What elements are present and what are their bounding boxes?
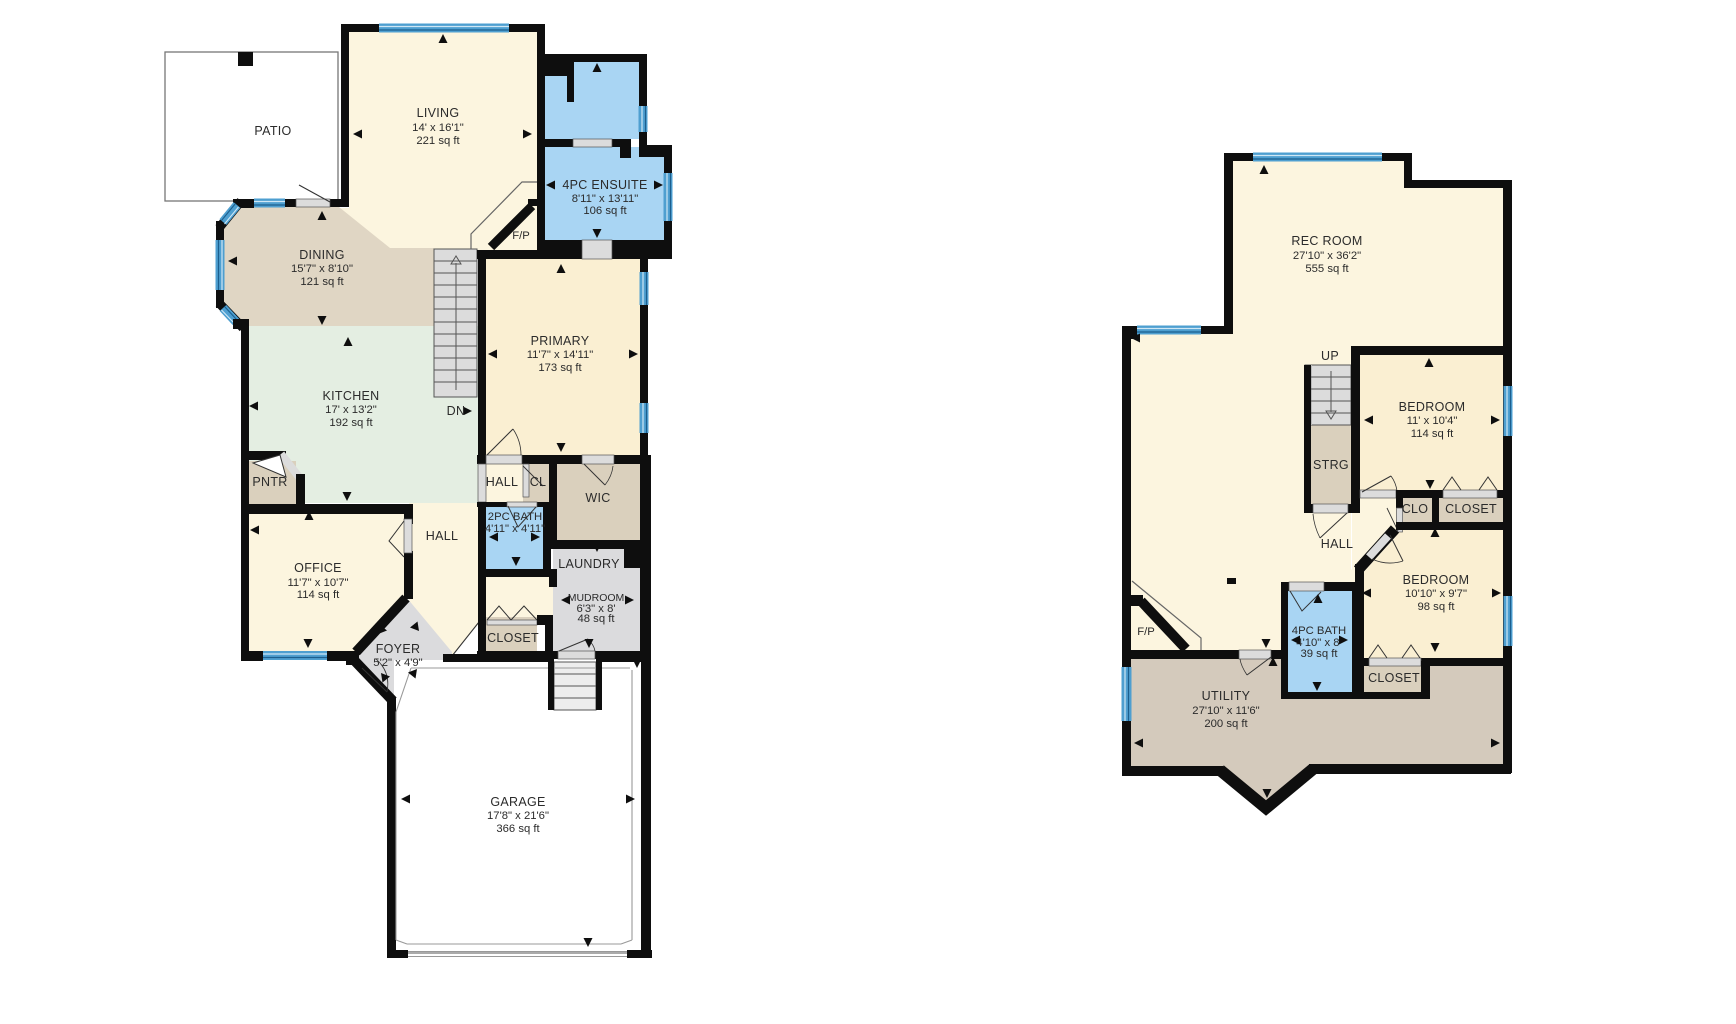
svg-text:LAUNDRY: LAUNDRY xyxy=(558,557,620,571)
svg-text:5'2" x 4'9": 5'2" x 4'9" xyxy=(373,657,422,669)
svg-text:15'7" x 8'10": 15'7" x 8'10" xyxy=(291,263,353,275)
svg-text:LIVING: LIVING xyxy=(417,106,460,120)
svg-text:4'11" x 4'11": 4'11" x 4'11" xyxy=(485,523,545,535)
svg-text:39 sq ft: 39 sq ft xyxy=(1300,648,1338,660)
svg-text:OFFICE: OFFICE xyxy=(294,561,342,575)
svg-text:4PC ENSUITE: 4PC ENSUITE xyxy=(562,178,647,192)
svg-text:CLO: CLO xyxy=(1402,502,1429,516)
svg-text:KITCHEN: KITCHEN xyxy=(323,389,380,403)
svg-text:106 sq ft: 106 sq ft xyxy=(583,205,627,217)
svg-text:CL: CL xyxy=(530,475,547,489)
svg-text:114 sq ft: 114 sq ft xyxy=(1411,428,1454,440)
svg-text:200 sq ft: 200 sq ft xyxy=(1204,718,1248,730)
svg-text:48 sq ft: 48 sq ft xyxy=(577,613,615,625)
svg-text:PRIMARY: PRIMARY xyxy=(531,334,590,348)
svg-text:CLOSET: CLOSET xyxy=(1445,502,1497,516)
svg-text:17' x 13'2": 17' x 13'2" xyxy=(325,404,377,416)
svg-text:CLOSET: CLOSET xyxy=(487,631,539,645)
svg-text:4PC BATH: 4PC BATH xyxy=(1292,625,1346,637)
svg-text:F/P: F/P xyxy=(1137,626,1155,638)
svg-text:11'7" x 14'11": 11'7" x 14'11" xyxy=(527,349,594,361)
svg-text:14' x 16'1": 14' x 16'1" xyxy=(412,122,464,134)
svg-text:STRG: STRG xyxy=(1313,458,1349,472)
svg-text:221 sq ft: 221 sq ft xyxy=(416,135,460,147)
svg-text:11'7" x 10'7": 11'7" x 10'7" xyxy=(287,577,348,589)
svg-text:BEDROOM: BEDROOM xyxy=(1403,573,1470,587)
svg-text:27'10" x 36'2": 27'10" x 36'2" xyxy=(1293,250,1361,262)
svg-text:PNTR: PNTR xyxy=(252,475,287,489)
svg-text:98 sq ft: 98 sq ft xyxy=(1417,601,1455,613)
svg-text:UTILITY: UTILITY xyxy=(1202,689,1251,703)
svg-text:BEDROOM: BEDROOM xyxy=(1399,400,1466,414)
svg-text:PATIO: PATIO xyxy=(254,124,291,138)
svg-text:HALL: HALL xyxy=(1321,537,1353,551)
svg-text:10'10" x 9'7": 10'10" x 9'7" xyxy=(1405,588,1467,600)
svg-text:555 sq ft: 555 sq ft xyxy=(1305,263,1349,275)
svg-text:173 sq ft: 173 sq ft xyxy=(538,362,582,374)
svg-text:CLOSET: CLOSET xyxy=(1368,671,1420,685)
svg-text:121 sq ft: 121 sq ft xyxy=(300,276,344,288)
svg-text:FOYER: FOYER xyxy=(376,642,421,656)
svg-text:11' x 10'4": 11' x 10'4" xyxy=(1407,415,1458,427)
svg-text:GARAGE: GARAGE xyxy=(490,795,545,809)
svg-text:192 sq ft: 192 sq ft xyxy=(329,417,373,429)
svg-text:17'8" x 21'6": 17'8" x 21'6" xyxy=(487,810,549,822)
svg-text:366 sq ft: 366 sq ft xyxy=(496,823,540,835)
svg-text:REC ROOM: REC ROOM xyxy=(1291,234,1362,248)
svg-text:2PC BATH: 2PC BATH xyxy=(488,511,542,523)
svg-text:114 sq ft: 114 sq ft xyxy=(297,589,340,601)
svg-text:UP: UP xyxy=(1321,349,1339,363)
svg-text:WIC: WIC xyxy=(585,491,610,505)
svg-text:DN: DN xyxy=(447,404,466,418)
svg-text:27'10" x 11'6": 27'10" x 11'6" xyxy=(1192,705,1259,717)
svg-text:HALL: HALL xyxy=(426,529,458,543)
svg-text:HALL: HALL xyxy=(486,475,518,489)
svg-text:8'11" x 13'11": 8'11" x 13'11" xyxy=(572,193,639,205)
svg-text:DINING: DINING xyxy=(299,248,345,262)
svg-text:F/P: F/P xyxy=(512,230,530,242)
